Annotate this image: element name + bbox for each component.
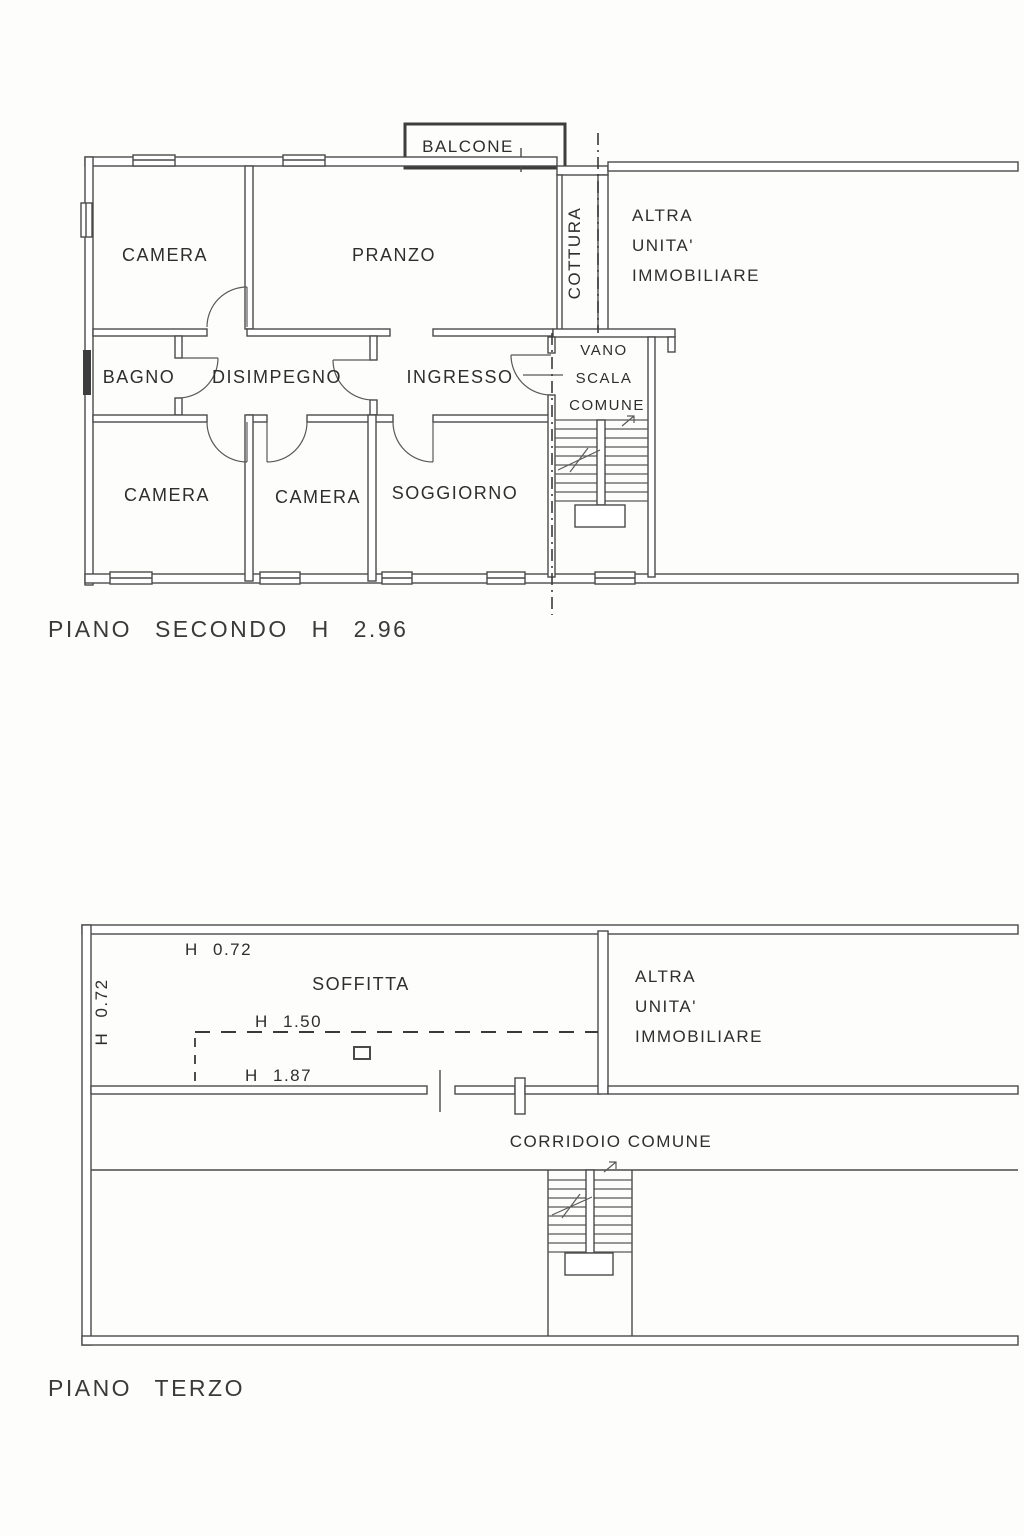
room-label-camera-s: CAMERA: [275, 487, 361, 507]
room-label-cottura: COTTURA: [565, 207, 584, 300]
staircase-plan3: [548, 1162, 632, 1336]
altra-line-1: ALTRA: [632, 206, 693, 225]
height-label-left: H 0.72: [92, 978, 111, 1045]
plan-terzo: H 0.72 H 0.72 SOFFITTA H 1.50 H 1.87 ALT…: [48, 925, 1018, 1401]
floor-plan-drawing: BALCONE CAMERA PRANZO COTTURA ALTRA UNIT…: [0, 0, 1024, 1536]
wall-fill-mark: [83, 350, 91, 395]
vano-line-3: COMUNE: [569, 397, 645, 414]
label-vano-scala-comune: VANO SCALA COMUNE: [569, 342, 645, 414]
room-label-soggiorno: SOGGIORNO: [392, 483, 519, 503]
vano-line-2: SCALA: [576, 370, 633, 387]
height-label-mid: H 1.50: [255, 1012, 322, 1031]
altra-line-2: UNITA': [635, 997, 697, 1016]
room-label-soffitta: SOFFITTA: [312, 974, 410, 994]
altra-line-2: UNITA': [632, 236, 694, 255]
altra-line-3: IMMOBILIARE: [635, 1027, 763, 1046]
height-label-low: H 1.87: [245, 1066, 312, 1085]
vano-line-1: VANO: [580, 342, 627, 359]
room-label-ingresso: INGRESSO: [406, 367, 513, 387]
room-label-disimpegno: DISIMPEGNO: [212, 367, 342, 387]
scanned-floor-plan-page: BALCONE CAMERA PRANZO COTTURA ALTRA UNIT…: [0, 0, 1024, 1536]
chimney-symbol: [354, 1047, 370, 1059]
altra-line-3: IMMOBILIARE: [632, 266, 760, 285]
plan-secondo: BALCONE CAMERA PRANZO COTTURA ALTRA UNIT…: [48, 124, 1018, 642]
room-label-camera-nw: CAMERA: [122, 245, 208, 265]
room-label-balcone: BALCONE: [422, 137, 514, 156]
height-label-top: H 0.72: [185, 940, 252, 959]
plan-terzo-title: PIANO TERZO: [48, 1375, 245, 1401]
stair-up-arrow: [622, 416, 634, 426]
room-label-corridoio: CORRIDOIO COMUNE: [510, 1132, 713, 1151]
altra-line-1: ALTRA: [635, 967, 696, 986]
plan-secondo-title: PIANO SECONDO H 2.96: [48, 616, 408, 642]
room-label-pranzo: PRANZO: [352, 245, 436, 265]
label-altra-unita-plan3: ALTRA UNITA' IMMOBILIARE: [635, 967, 763, 1046]
staircase-plan2: [555, 416, 648, 527]
label-altra-unita-plan2: ALTRA UNITA' IMMOBILIARE: [632, 206, 760, 285]
room-label-camera-sw: CAMERA: [124, 485, 210, 505]
room-label-bagno: BAGNO: [103, 367, 176, 387]
